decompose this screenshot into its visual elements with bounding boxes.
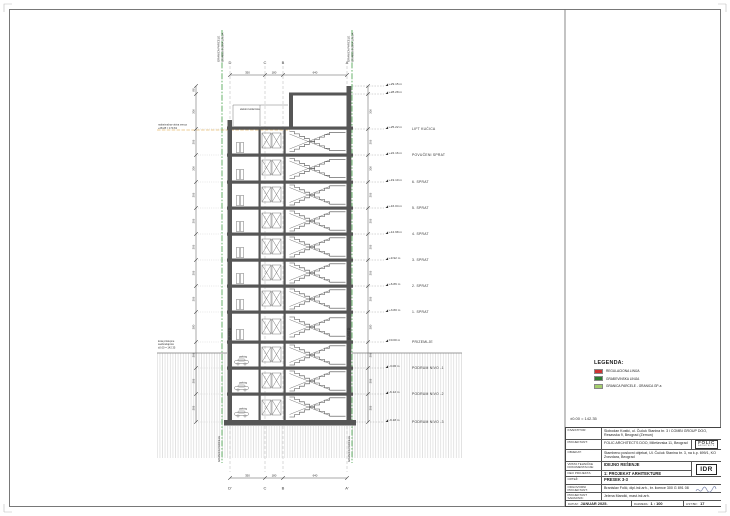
- level-name: PODRUM NIVO -1: [412, 366, 444, 370]
- date-cell: DATUM: JANUAR 2025.: [566, 501, 632, 506]
- level-elevation: +12.98 m: [389, 230, 402, 234]
- sheet-number-cell: LIST BR.: 17: [684, 501, 721, 506]
- folic-logo: FOLIC ARCHITECTS: [691, 440, 721, 449]
- dim-value: 306: [192, 378, 196, 383]
- signature: [691, 485, 721, 492]
- level-elevation: +3.80 m: [389, 308, 401, 312]
- dim-value: 306: [368, 270, 372, 275]
- lift-room-wall: [289, 94, 293, 128]
- dim-value: 380: [192, 324, 196, 329]
- dim-value: 306: [192, 166, 196, 171]
- dim-value: 306: [368, 405, 372, 410]
- legend-title: LEGENDA:: [594, 360, 661, 366]
- row-value: Jelena Mandić, mast.inž.arh.: [602, 493, 721, 500]
- scale-cell: RAZMERA: 1 : 100: [632, 501, 684, 506]
- legend-swatch-regulation-line: [594, 369, 603, 374]
- dim-value: 380: [368, 324, 372, 329]
- sheet-number-label: LIST BR.:: [686, 502, 698, 506]
- boundary-label: GRAĐEVINSKA LINIJA: [351, 33, 355, 62]
- shaft-wall: [284, 128, 286, 420]
- boundary-label: GRANICA PARCELE: [217, 436, 221, 462]
- boundary-label: GRAĐEVINSKA LINIJA: [221, 33, 225, 62]
- level-name: 5. SPRAT: [412, 206, 429, 210]
- level-name: PODRUM NIVO -2: [412, 392, 444, 396]
- dim-value: 306: [192, 139, 196, 144]
- row-value: FOLIC ARCHITECTS DOO, Mileševska 11, Beo…: [602, 440, 691, 449]
- dim-value: 306: [192, 405, 196, 410]
- logo-line2: ARCHITECTS: [698, 446, 715, 448]
- titleblock-row-footer: DATUM: JANUAR 2025. RAZMERA: 1 : 100 LIS…: [566, 501, 721, 506]
- grid-labels: D C B A 350 180 640 D' C B A' 350 180 64…: [228, 60, 349, 491]
- left-wall: [228, 120, 233, 423]
- titleblock-row-object: OBJEKAT: Stambeno poslovni objekat, Ul. …: [566, 450, 721, 462]
- dim-value: 306: [368, 166, 372, 171]
- dim-value: 306: [368, 139, 372, 144]
- legend-swatch-parcel-boundary: [594, 384, 603, 389]
- parking-label: parking: [239, 408, 248, 411]
- date-value: JANUAR 2025.: [581, 501, 608, 506]
- dim-value: 306: [192, 109, 196, 114]
- terrain-note: ±0.00 = 142.35: [158, 345, 176, 349]
- dim-value: 306: [192, 244, 196, 249]
- dim-value: 350: [245, 70, 250, 74]
- titleblock-row-doctype: VRSTA TEHNIČKE DOKUMENTACIJE: IDEJNO REŠ…: [566, 462, 721, 477]
- grid-letter: D': [228, 486, 232, 491]
- stamp-text: IDR: [696, 464, 716, 475]
- date-label: DATUM:: [568, 502, 579, 506]
- level-elevation: ±0.00 m: [389, 338, 401, 342]
- dim-value: 306: [192, 218, 196, 223]
- dim-value: 180: [272, 70, 277, 74]
- sheet-number-value: 17: [700, 501, 704, 506]
- row-value: Slobodan Kostić, ul. Čučuk Stanina br. 3…: [602, 428, 721, 439]
- idr-stamp: IDR: [691, 462, 721, 476]
- dim-value: 350: [245, 473, 250, 477]
- level-elevation: +25.22 m: [389, 125, 402, 129]
- dim-value: 306: [368, 244, 372, 249]
- dim-value: 640: [313, 70, 318, 74]
- level-elevation: +6.86 m: [389, 282, 401, 286]
- cornice-note: +28.28 = 170.63: [158, 126, 177, 130]
- roof-note: elektro kotlarnica: [240, 107, 260, 111]
- grid-letter: C: [264, 486, 267, 491]
- scale-label: RAZMERA:: [634, 502, 648, 506]
- title-block: INVESTITOR: Slobodan Kostić, ul. Čučuk S…: [565, 427, 721, 507]
- legend: LEGENDA: REGULACIONA LINIJA GRAĐEVINSKA …: [594, 360, 661, 389]
- dim-value: 306: [192, 192, 196, 197]
- dim-value: 306: [368, 352, 372, 357]
- legend-item-label: REGULACIONA LINIJA: [606, 369, 639, 373]
- level-elevation: +29.15 m: [389, 82, 402, 86]
- dim-value: 180: [272, 473, 277, 477]
- legend-item-label: GRANICA PARCELE - GRANICA GP-a: [606, 384, 661, 388]
- titleblock-row-investor: INVESTITOR: Slobodan Kostić, ul. Čučuk S…: [566, 428, 721, 440]
- row-label: OBJEKAT:: [566, 450, 602, 461]
- dim-value: 306: [368, 109, 372, 114]
- grid-letter: B: [282, 486, 285, 491]
- neighbor-label: SUSED: [228, 327, 232, 340]
- grid-letter: A': [345, 486, 349, 491]
- row-value: Branislav Folić, dipl.inž.arh., br. lice…: [602, 485, 691, 492]
- level-name: 2. SPRAT: [412, 284, 429, 288]
- legend-item: GRAĐEVINSKA LINIJA: [594, 376, 661, 381]
- grid-letter: D: [229, 60, 232, 65]
- level-name: POVUČENI SPRAT: [412, 152, 445, 157]
- building-section: elektro kotlarnica: [224, 86, 356, 426]
- parking-label: parking: [239, 356, 248, 359]
- dim-value: 306: [368, 218, 372, 223]
- row-label: PROJEKTANT:: [566, 440, 602, 449]
- legend-swatch-building-line: [594, 376, 603, 381]
- legend-item: REGULACIONA LINIJA: [594, 369, 661, 374]
- grid-letter: A: [346, 60, 349, 65]
- dim-value: 306: [192, 270, 196, 275]
- dim-value: 306: [192, 352, 196, 357]
- foundation-slab: [224, 420, 356, 426]
- level-elevation: -9.18 m: [389, 418, 400, 422]
- titleblock-row-lead-architect: ODGOVORNI PROJEKTANT: Branislav Folić, d…: [566, 485, 721, 493]
- level-name: 4. SPRAT: [412, 232, 429, 236]
- grid-letter: C: [264, 60, 267, 65]
- row-label: CRTEŽ:: [566, 477, 602, 484]
- level-elevation: -3.06 m: [389, 364, 400, 368]
- level-name: LIFT KUĆICA: [412, 126, 436, 131]
- shaft-wall: [259, 128, 261, 420]
- signature-scribble: [695, 485, 717, 493]
- row-value: IDEJNO REŠENJE: [602, 462, 691, 470]
- dim-value: 88: [192, 88, 196, 92]
- dim-value: 640: [313, 473, 318, 477]
- level-name: 6. SPRAT: [412, 180, 429, 184]
- row-label: INVESTITOR:: [566, 428, 602, 439]
- neighbor-label: SUSED: [347, 327, 351, 340]
- level-name: 1. SPRAT: [412, 310, 429, 314]
- legend-item: GRANICA PARCELE - GRANICA GP-a: [594, 384, 661, 389]
- dim-value: 306: [368, 192, 372, 197]
- row-label: DEO PROJEKTA:: [566, 471, 602, 477]
- level-name: 3. SPRAT: [412, 258, 429, 262]
- lift-room-roof: [289, 93, 351, 96]
- level-elevation: -6.12 m: [389, 390, 400, 394]
- drawing-sheet: GRANICA PARCELE GRAĐEVINSKA LINIJA GRANI…: [0, 0, 730, 516]
- row-value: 1: PROJEKAT ARHITEKTURE: [602, 471, 691, 477]
- legend-item-label: GRAĐEVINSKA LINIJA: [606, 377, 639, 381]
- titleblock-row-designer: PROJEKTANT: FOLIC ARCHITECTS DOO, Mileše…: [566, 440, 721, 450]
- level-name: PODRUM NIVO -3: [412, 420, 444, 424]
- level-elevation: +9.92 m: [389, 256, 401, 260]
- level-elevation: +28.28 m: [389, 90, 402, 94]
- row-label: PROJEKTANT SARADNIK:: [566, 493, 602, 500]
- boundary-label: GRANICA PARCELE: [347, 436, 351, 462]
- row-value: Stambeno poslovni objekat, Ul. Čučuk Sta…: [602, 450, 721, 461]
- row-value: PRESEK 3-3: [602, 477, 721, 484]
- scale-value: 1 : 100: [650, 501, 662, 506]
- dim-value: 306: [368, 378, 372, 383]
- level-elevation: +16.04 m: [389, 204, 402, 208]
- level-name: PRIZEMLJE: [412, 340, 433, 344]
- row-label: ODGOVORNI PROJEKTANT:: [566, 485, 602, 492]
- titleblock-row-associate: PROJEKTANT SARADNIK: Jelena Mandić, mast…: [566, 493, 721, 501]
- level-elevation: +22.16 m: [389, 151, 402, 155]
- datum-note: ±0.00 = 142.35: [570, 416, 597, 421]
- level-elevation: +19.10 m: [389, 178, 402, 182]
- row-label: VRSTA TEHNIČKE DOKUMENTACIJE:: [566, 462, 602, 470]
- right-wall: [347, 86, 352, 423]
- dim-value: 306: [192, 296, 196, 301]
- parking-label: parking: [239, 382, 248, 385]
- grid-letter: B: [282, 60, 285, 65]
- dim-value: 306: [368, 296, 372, 301]
